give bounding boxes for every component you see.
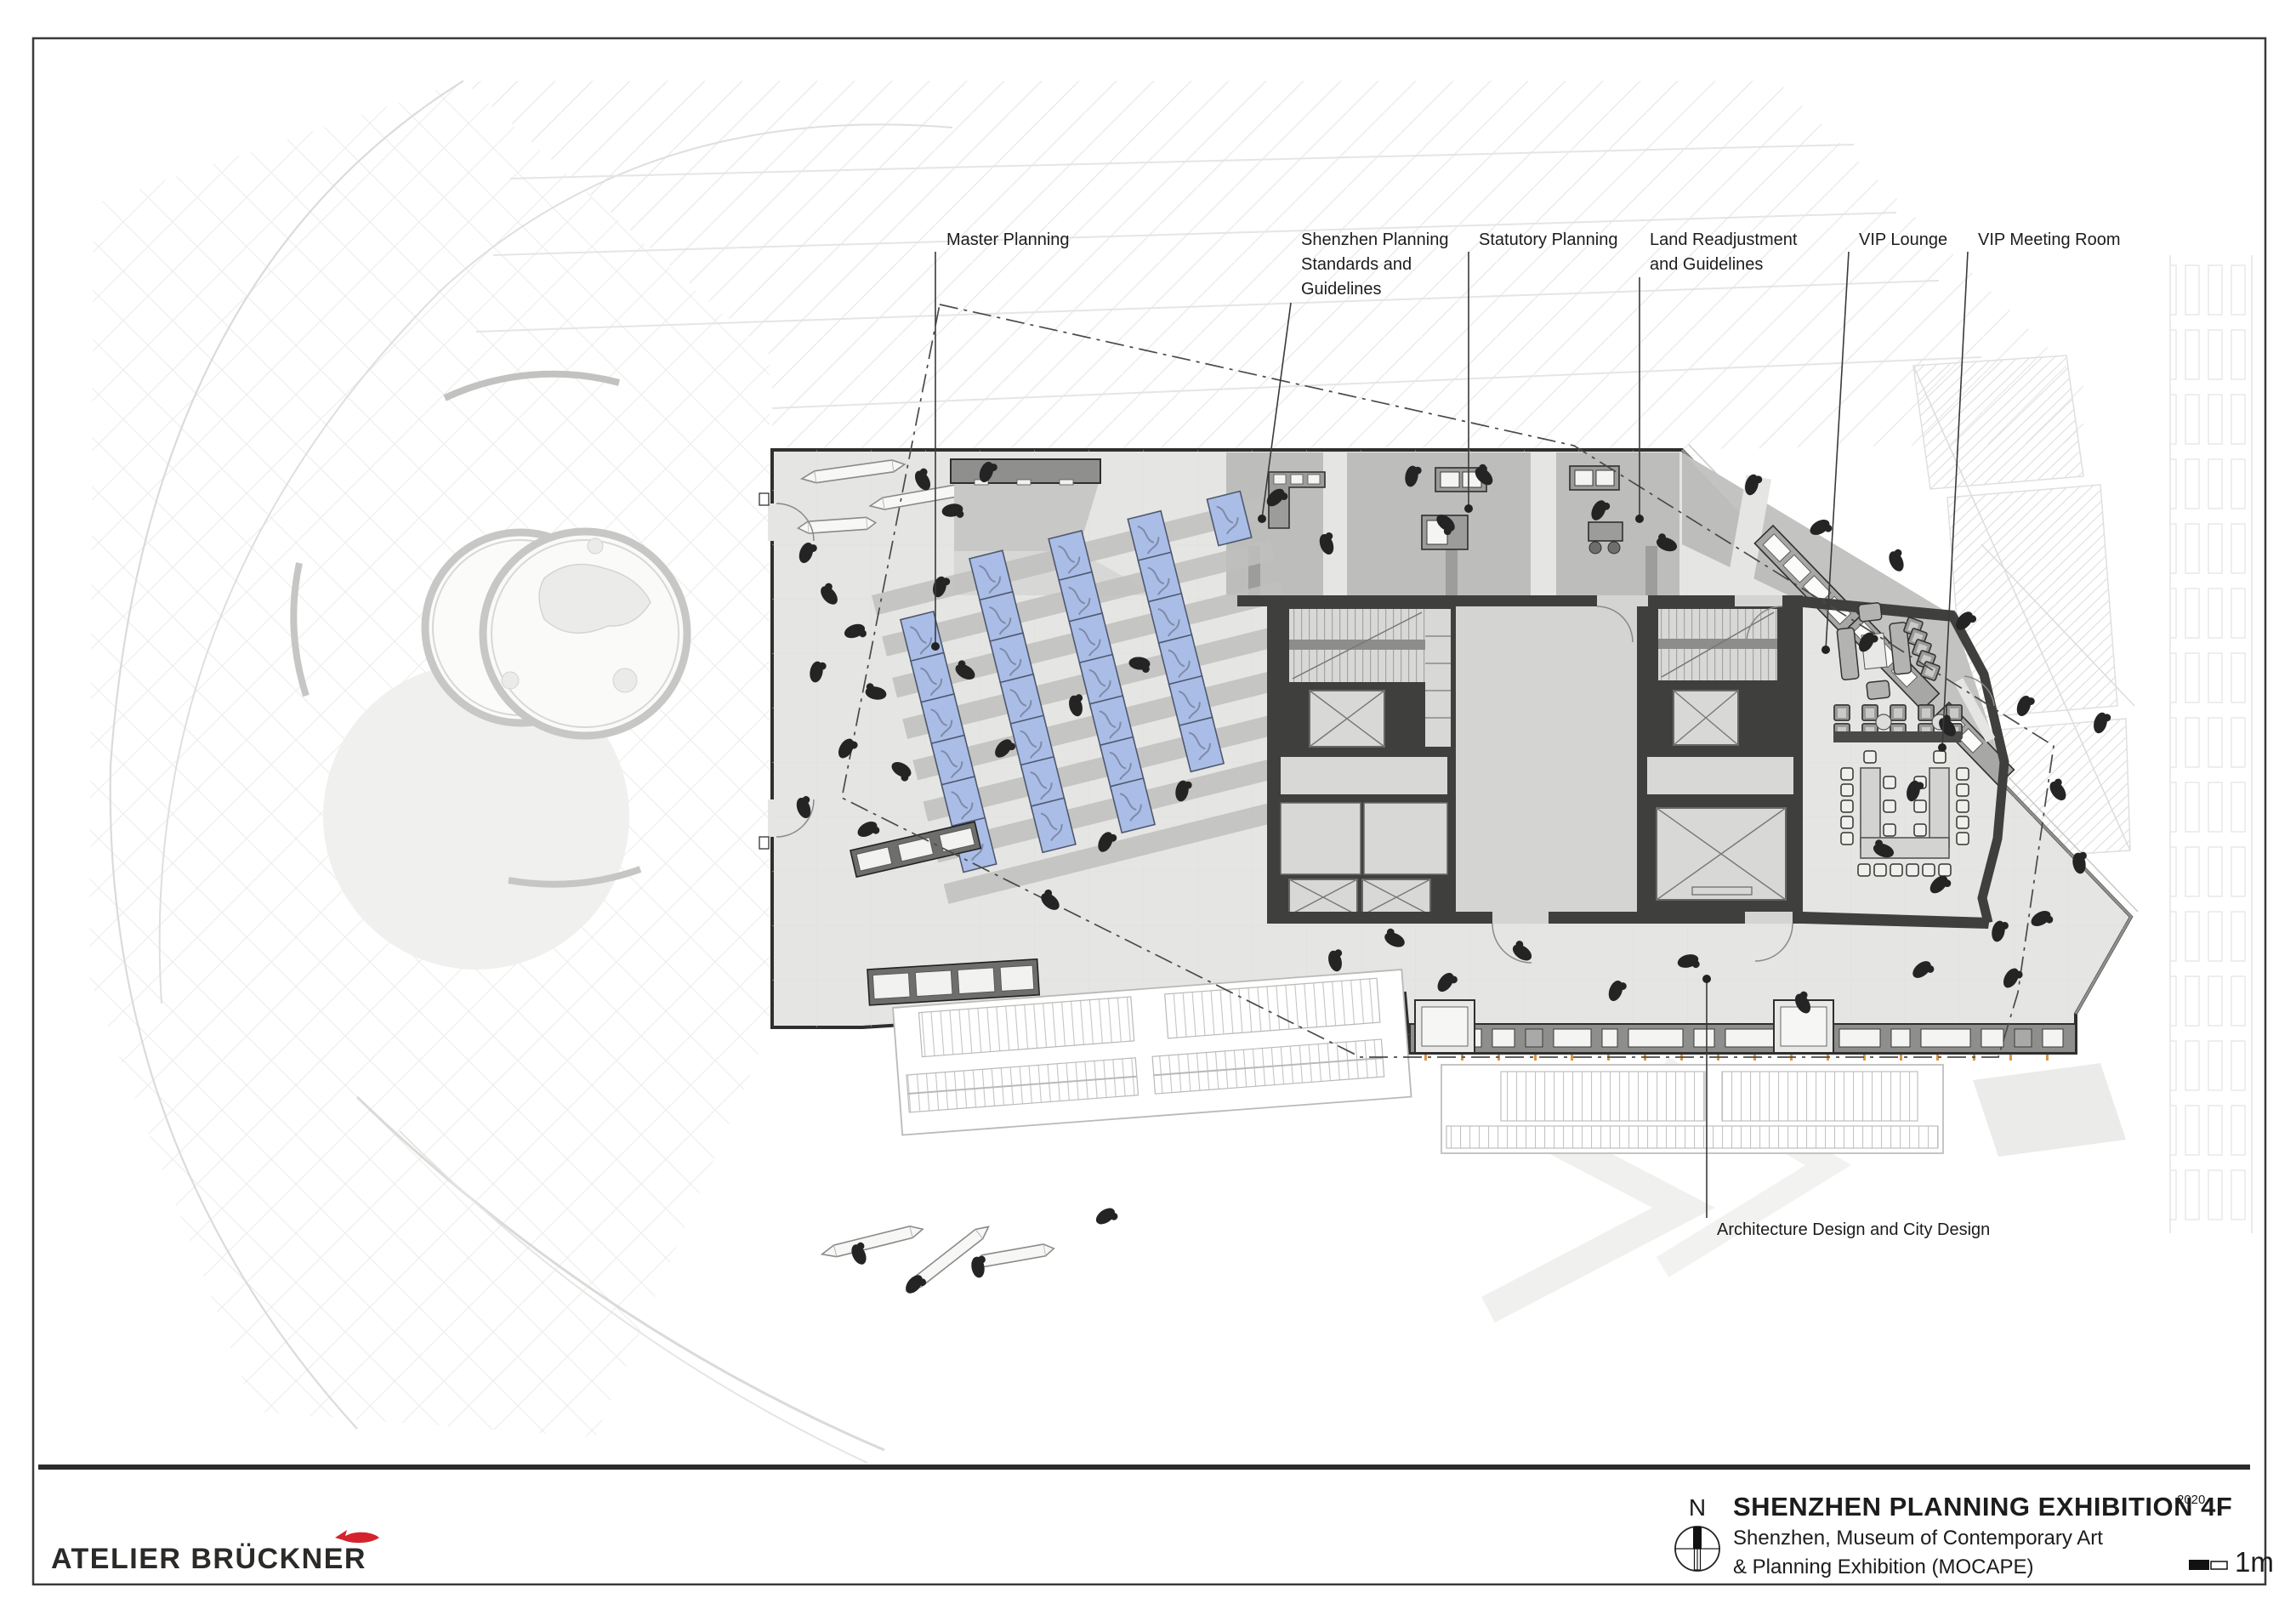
meeting-chair	[1923, 864, 1935, 876]
meeting-chair	[1914, 824, 1926, 836]
display-window	[1526, 1029, 1543, 1047]
label-shenzhen-planning-1: Shenzhen Planning	[1301, 230, 1448, 249]
core-left	[1267, 595, 1456, 923]
sheet-subtitle-2: & Planning Exhibition (MOCAPE)	[1733, 1556, 2033, 1578]
label-land-readjustment-1: Land Readjustment	[1650, 230, 1798, 249]
meeting-chair	[1957, 784, 1969, 796]
vip-sideboard	[1833, 731, 1961, 742]
meeting-chair	[1884, 776, 1895, 788]
label-land-readjustment-2: and Guidelines	[1650, 255, 1763, 274]
survey-tick	[1900, 1055, 1902, 1061]
survey-tick	[2009, 1055, 2012, 1061]
vip-armchair	[1918, 705, 1934, 720]
display-window	[1554, 1029, 1591, 1047]
sheet-year: 2020	[2177, 1493, 2205, 1507]
scale-label: 1m	[2235, 1546, 2274, 1578]
meeting-chair	[1890, 864, 1902, 876]
studio-branding: ATELIER BRÜCKNER	[51, 1530, 379, 1575]
display-window	[2043, 1029, 2063, 1047]
label-statutory-planning: Statutory Planning	[1479, 230, 1617, 249]
floor-plan-canvas: Master Planning Shenzhen Planning Standa…	[0, 0, 2296, 1621]
survey-tick	[1571, 1055, 1573, 1061]
north-compass: N	[1675, 1494, 1719, 1571]
meeting-chair	[1957, 768, 1969, 780]
meeting-chair	[1874, 864, 1886, 876]
scale-bar: 1m	[2189, 1546, 2274, 1578]
meeting-chair	[1939, 864, 1951, 876]
red-fish-icon	[335, 1530, 379, 1543]
label-shenzhen-planning-2: Standards and	[1301, 255, 1412, 274]
vip-armchair	[1862, 705, 1878, 720]
central-hall	[1456, 606, 1637, 914]
survey-tick	[1424, 1055, 1427, 1061]
vip-armchair	[1834, 705, 1850, 720]
meeting-chair	[1934, 751, 1946, 763]
vip-armchair	[1890, 705, 1906, 720]
meeting-chair	[1957, 833, 1969, 845]
display-window	[1602, 1029, 1617, 1047]
meeting-chair	[1957, 816, 1969, 828]
display-window	[1981, 1029, 2003, 1047]
label-vip-meeting-room: VIP Meeting Room	[1978, 230, 2121, 249]
core-right	[1637, 595, 1803, 923]
meeting-chair	[1841, 784, 1853, 796]
drawing-sheet: Master Planning Shenzhen Planning Standa…	[0, 0, 2296, 1621]
survey-tick	[2046, 1055, 2049, 1061]
survey-tick	[1534, 1055, 1537, 1061]
display-window	[1921, 1029, 1970, 1047]
label-master-planning: Master Planning	[946, 230, 1070, 249]
display-window	[2015, 1029, 2032, 1047]
meeting-chair	[1841, 816, 1853, 828]
person-figure	[1886, 548, 1909, 573]
label-architecture-design: Architecture Design and City Design	[1717, 1220, 1990, 1239]
scale-bar-icon	[2189, 1560, 2209, 1570]
display-window	[1891, 1029, 1910, 1047]
sheet-title: SHENZHEN PLANNING EXHIBITION 4F	[1733, 1492, 2232, 1521]
display-window	[1492, 1029, 1515, 1047]
display-window	[1628, 1029, 1683, 1047]
side-table	[1876, 714, 1891, 730]
meeting-chair	[1864, 751, 1876, 763]
sheet-subtitle-1: Shenzhen, Museum of Contemporary Art	[1733, 1527, 2103, 1550]
meeting-chair	[1841, 768, 1853, 780]
meeting-chair	[1841, 833, 1853, 845]
meeting-chair	[1858, 864, 1870, 876]
title-block: SHENZHEN PLANNING EXHIBITION 4F 2020 She…	[1733, 1492, 2232, 1578]
label-shenzhen-planning-3: Guidelines	[1301, 280, 1382, 299]
studio-name: ATELIER BRÜCKNER	[51, 1543, 367, 1575]
label-vip-lounge: VIP Lounge	[1859, 230, 1947, 249]
meeting-chair	[1907, 864, 1918, 876]
meeting-chair	[1841, 800, 1853, 812]
meeting-chair	[1957, 800, 1969, 812]
north-label: N	[1689, 1494, 1706, 1521]
meeting-chair	[1884, 800, 1895, 812]
facade-elevation-ghost	[2170, 255, 2252, 1233]
meeting-chair	[1914, 800, 1926, 812]
display-window	[1839, 1029, 1880, 1047]
display-window	[1694, 1029, 1714, 1047]
meeting-chair	[1884, 824, 1895, 836]
person-figure	[1093, 1205, 1119, 1230]
